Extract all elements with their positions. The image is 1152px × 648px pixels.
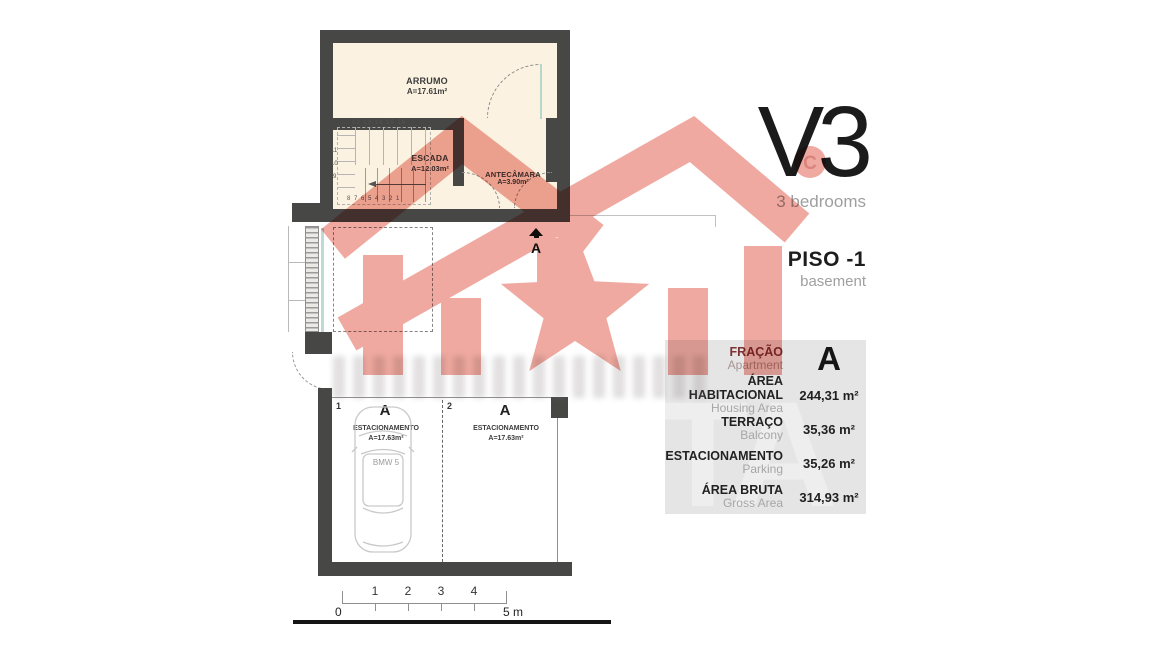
- wall-stub-bottom: [305, 332, 332, 354]
- floor-label: PISO -1: [600, 248, 866, 272]
- stair-number-9: 9: [333, 174, 336, 180]
- exterior-tick-1: [288, 262, 305, 263]
- scale-label-3: 3: [436, 584, 446, 598]
- stair-numbers-top: 12 13 14 15 16: [352, 120, 406, 126]
- scale-tick-3: [441, 603, 442, 611]
- glazing-line: [321, 228, 324, 332]
- garage-pillar: [551, 397, 568, 418]
- stair-number-10: 10: [331, 161, 338, 167]
- garage-right-line: [557, 416, 558, 562]
- garage-left-wall: [318, 388, 332, 576]
- scale-tick-1: [375, 603, 376, 611]
- stairs-left-flight: [337, 135, 355, 197]
- scale-tick-2: [408, 603, 409, 611]
- scale-label-0: 0: [335, 605, 342, 619]
- exterior-tick-2: [288, 300, 305, 301]
- stairs-direction-line: [374, 184, 426, 185]
- parking-spot-2-number: 2: [447, 401, 452, 411]
- apartment-letter: A: [792, 340, 866, 378]
- stairs-direction-arrow-icon: [368, 181, 376, 187]
- parking-divider-dashed: [442, 400, 443, 562]
- stair-number-11: 11: [331, 148, 337, 154]
- dashed-opening-above: [333, 227, 433, 332]
- blurred-watermark-text: [333, 356, 713, 398]
- table-row-area-bruta: ÁREA BRUTA Gross Area 314,93 m²: [665, 480, 866, 514]
- floor-label-en: basement: [600, 273, 866, 290]
- car-icon: [350, 402, 416, 556]
- room-label-arrumo: ARRUMO A=17.61m²: [367, 76, 487, 97]
- unit-title: V3: [600, 96, 866, 188]
- bottom-divider-line: [293, 620, 611, 624]
- exterior-line: [288, 226, 289, 332]
- scale-tick-start: [342, 591, 343, 603]
- section-marker-label: A: [528, 240, 544, 256]
- scale-label-5m: 5 m: [503, 605, 523, 619]
- stair-numbers-bottom: 8 7 6 5 4 3 2 1: [347, 196, 400, 202]
- scale-label-1: 1: [370, 584, 380, 598]
- title-block: V3 3 bedrooms PISO -1 basement: [600, 96, 866, 290]
- section-arrow-stem: [534, 234, 539, 238]
- stairs-upper-flight: [355, 127, 429, 165]
- table-row-estacionamento: ESTACIONAMENTO Parking 35,26 m²: [665, 446, 866, 480]
- unit-subtitle: 3 bedrooms: [600, 192, 866, 212]
- hatched-wall: [305, 226, 319, 332]
- brand-watermark-icon: C: [0, 0, 1152, 648]
- garage-bottom-wall: [318, 562, 572, 576]
- scale-bar: [342, 603, 507, 604]
- door-arc-entry: [292, 352, 330, 390]
- room-label-antecamara: ANTECÂMARA A=3.90m²: [470, 170, 556, 188]
- door-leaf: [540, 64, 542, 119]
- parking-spot-2-letter: A: [460, 402, 550, 419]
- scale-label-2: 2: [403, 584, 413, 598]
- scale-label-4: 4: [469, 584, 479, 598]
- scale-tick-4: [474, 603, 475, 611]
- table-row-terraco: TERRAÇO Balcony 35,36 m²: [665, 412, 866, 446]
- wall-stub-top: [292, 203, 320, 222]
- scale-tick-end: [506, 591, 507, 603]
- floor-plan-page: ARRUMO A=17.61m² ESCADA A=12.03m² ANTECÂ…: [0, 0, 1152, 648]
- parking-spot-2-label: ESTACIONAMENTO A=17.63m²: [458, 424, 554, 444]
